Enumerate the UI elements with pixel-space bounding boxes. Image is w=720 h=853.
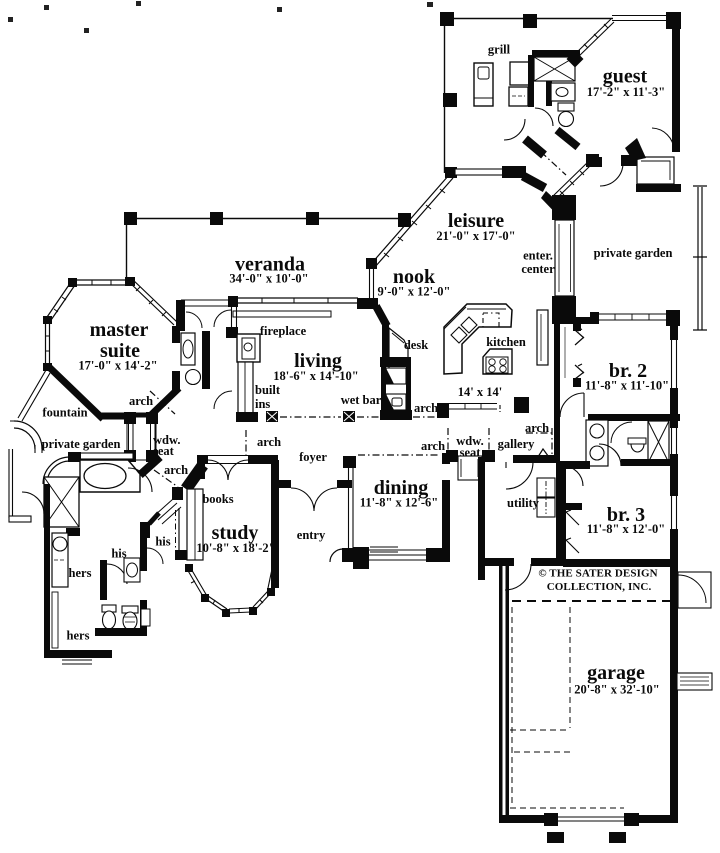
svg-text:hers: hers: [69, 566, 92, 580]
svg-text:11'-8" x 12'-6": 11'-8" x 12'-6": [360, 496, 438, 510]
svg-text:© THE SATER DESIGN: © THE SATER DESIGN: [538, 568, 657, 580]
svg-text:garage: garage: [587, 662, 645, 684]
svg-text:wet bar: wet bar: [341, 393, 382, 407]
svg-text:21'-0" x 17'-0": 21'-0" x 17'-0": [436, 229, 515, 243]
svg-text:fireplace: fireplace: [260, 324, 307, 338]
svg-text:11'-8" x 11'-10": 11'-8" x 11'-10": [585, 379, 669, 393]
svg-text:books: books: [202, 492, 233, 506]
svg-text:fountain: fountain: [42, 406, 87, 420]
svg-text:foyer: foyer: [299, 450, 327, 464]
svg-text:center: center: [521, 262, 555, 276]
svg-text:arch: arch: [525, 421, 549, 435]
svg-text:arch: arch: [164, 463, 188, 477]
svg-text:private garden: private garden: [42, 437, 121, 451]
svg-text:9'-0" x 12'-0": 9'-0" x 12'-0": [378, 285, 451, 299]
svg-text:11'-8" x 12'-0": 11'-8" x 12'-0": [587, 522, 665, 536]
svg-text:seat: seat: [153, 444, 175, 458]
svg-text:built: built: [255, 383, 281, 397]
svg-text:seat: seat: [460, 446, 482, 460]
svg-text:arch: arch: [129, 394, 153, 408]
svg-text:his: his: [155, 535, 170, 549]
svg-text:34'-0" x 10'-0": 34'-0" x 10'-0": [229, 272, 308, 286]
svg-text:his: his: [111, 547, 126, 561]
svg-text:COLLECTION, INC.: COLLECTION, INC.: [547, 581, 652, 593]
svg-text:gallery: gallery: [498, 437, 536, 451]
svg-text:17'-0" x 14'-2": 17'-0" x 14'-2": [78, 359, 157, 373]
svg-text:private garden: private garden: [594, 246, 673, 260]
svg-text:grill: grill: [488, 43, 511, 57]
svg-text:17'-2" x 11'-3": 17'-2" x 11'-3": [587, 85, 665, 99]
svg-text:entry: entry: [297, 528, 326, 542]
svg-text:18'-6" x 14'-10": 18'-6" x 14'-10": [273, 369, 358, 383]
svg-text:arch: arch: [421, 439, 445, 453]
svg-text:kitchen: kitchen: [486, 335, 526, 349]
svg-text:arch: arch: [414, 401, 438, 415]
svg-text:enter.: enter.: [523, 249, 553, 263]
svg-text:utility: utility: [507, 496, 540, 510]
svg-text:14' x 14': 14' x 14': [458, 385, 502, 399]
svg-text:desk: desk: [404, 338, 428, 352]
svg-text:ins: ins: [255, 397, 270, 411]
svg-text:20'-8" x 32'-10": 20'-8" x 32'-10": [574, 683, 659, 697]
svg-text:arch: arch: [257, 435, 281, 449]
svg-text:master: master: [90, 319, 149, 341]
svg-text:10'-8" x 18'-2": 10'-8" x 18'-2": [196, 541, 275, 555]
svg-text:hers: hers: [67, 629, 90, 643]
